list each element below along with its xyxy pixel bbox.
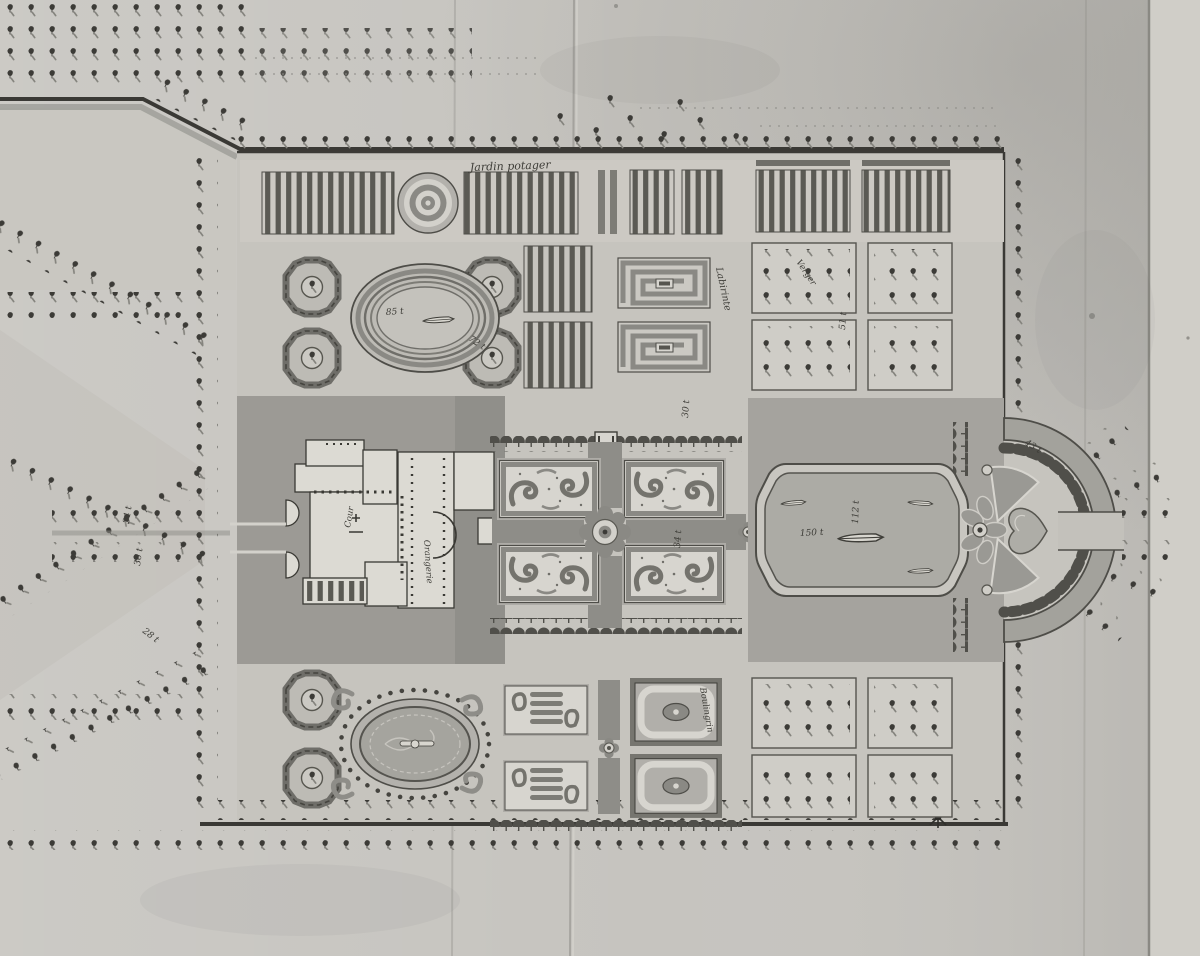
kitchen-garden-band: Jardin potager bbox=[240, 158, 1004, 242]
chateau-northeast-block bbox=[454, 452, 494, 510]
grass-strip-2 bbox=[598, 758, 620, 814]
tree-file-east-north bbox=[1012, 158, 1032, 420]
scallop-strip-ne bbox=[953, 422, 968, 476]
east-avenue-row-s bbox=[1122, 540, 1178, 560]
bosquet-cabinet-sw1 bbox=[286, 673, 338, 727]
bowling-green-south bbox=[630, 754, 722, 818]
parterre-quarter: 34 t bbox=[490, 432, 758, 634]
east-avenue-row-n bbox=[1122, 498, 1178, 518]
potager-hedge-1 bbox=[598, 170, 605, 234]
potager-beds-6 bbox=[862, 170, 950, 232]
quincunx-south bbox=[752, 678, 952, 817]
scallop-strip-se bbox=[953, 598, 968, 652]
tree-grid-northwest bbox=[0, 4, 252, 92]
broderie-panel-nw bbox=[497, 458, 601, 520]
exedra-east-avenue-cut bbox=[1058, 512, 1124, 550]
chateau-southeast-block bbox=[365, 562, 407, 606]
grass-strip-1 bbox=[598, 680, 620, 740]
bosquet-cabinet-nw1 bbox=[286, 260, 338, 314]
potager-top-hedge-2 bbox=[862, 160, 950, 166]
tree-avenue-west-2 bbox=[0, 694, 190, 720]
dim-bosquet-side: 51 t bbox=[838, 311, 849, 330]
chateau: Cour Orangerie bbox=[230, 396, 505, 664]
tree-file-east-south bbox=[1012, 640, 1032, 812]
grand-basin-terrace: 150 t 112 t bbox=[748, 398, 1004, 662]
broderie-panel-se bbox=[622, 543, 726, 605]
tree-row-north-wall bbox=[238, 130, 1004, 150]
potager-hedge-2 bbox=[610, 170, 617, 234]
exedra-fountain-s bbox=[982, 585, 992, 595]
potager-beds-1 bbox=[262, 172, 394, 234]
chateau-north-wing bbox=[295, 464, 365, 492]
potager-beds-2 bbox=[464, 172, 578, 234]
dim-basin-length: 150 t bbox=[800, 528, 825, 539]
scanned-garden-plan: 34 t 36 t 28 t Jardin potager bbox=[0, 0, 1200, 956]
tree-rows-north bbox=[252, 28, 472, 92]
labyrinth-north bbox=[618, 258, 710, 308]
dim-terrace-walk: 30 t bbox=[681, 399, 692, 418]
dim-arena-width: 85 t bbox=[386, 307, 405, 318]
tree-boundary-west bbox=[196, 150, 218, 808]
bosquet-cabinet-nw2 bbox=[286, 331, 338, 385]
circular-parterre bbox=[398, 173, 458, 233]
potager-beds-5 bbox=[756, 170, 850, 232]
potager-beds-3 bbox=[630, 170, 674, 234]
nursery-beds-1 bbox=[524, 246, 592, 312]
oval-amphitheater: 85 t 72 t bbox=[351, 264, 499, 372]
nursery-beds-2 bbox=[524, 322, 592, 388]
chateau-north-pavilion bbox=[363, 450, 397, 504]
labyrinth-south bbox=[618, 322, 710, 372]
gallery-hatching bbox=[306, 581, 364, 601]
berceau-row-far-south bbox=[490, 820, 742, 834]
broderie-panel-ne bbox=[622, 458, 726, 520]
potager-beds-4 bbox=[682, 170, 722, 234]
cutwork-panel-south bbox=[503, 760, 589, 812]
plan-drawing: 34 t 36 t 28 t Jardin potager bbox=[0, 0, 1200, 956]
broderie-panel-sw bbox=[497, 543, 601, 605]
exedra-fountain-n bbox=[982, 465, 992, 475]
dim-basin-width: 112 t bbox=[851, 500, 862, 524]
dim-parterre-alley: 34 t bbox=[673, 529, 684, 548]
potager-top-hedge-1 bbox=[756, 160, 850, 166]
bosquet-cabinet-sw2 bbox=[286, 751, 338, 805]
cutwork-panel-north bbox=[503, 684, 589, 736]
